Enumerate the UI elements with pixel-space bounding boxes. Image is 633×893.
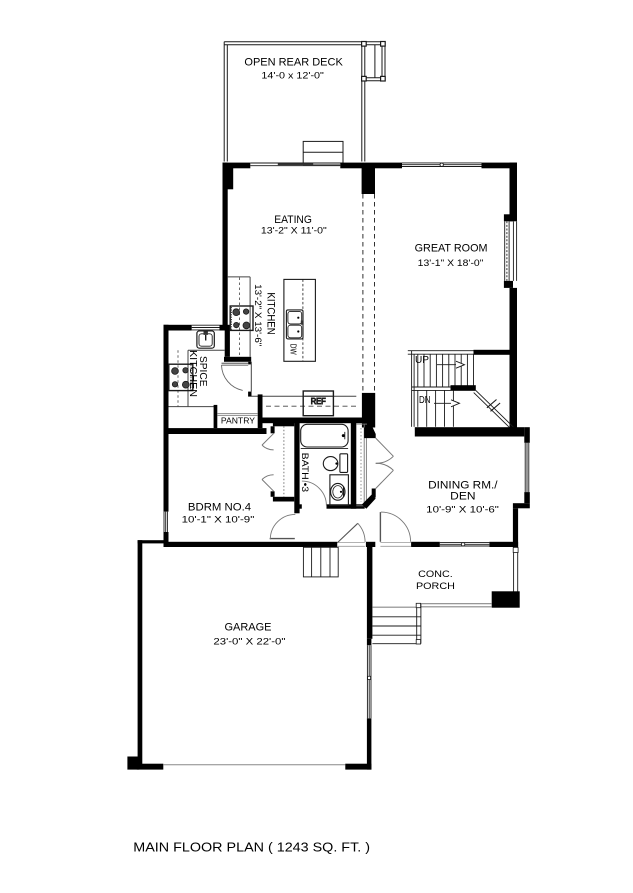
svg-text:DINING RM./: DINING RM./ xyxy=(428,479,499,491)
svg-text:DEN: DEN xyxy=(450,491,475,503)
svg-text:GREAT ROOM: GREAT ROOM xyxy=(415,243,488,255)
svg-text:13'-1" X 18'-0": 13'-1" X 18'-0" xyxy=(418,258,484,269)
svg-text:BATH •3: BATH •3 xyxy=(300,453,310,493)
svg-text:23'-0" X 22'-0": 23'-0" X 22'-0" xyxy=(213,636,285,647)
svg-text:10'-9" X 10'-6": 10'-9" X 10'-6" xyxy=(426,504,499,515)
svg-text:PORCH: PORCH xyxy=(416,581,455,592)
svg-text:13'-2" X 13'-6": 13'-2" X 13'-6" xyxy=(252,284,263,346)
svg-text:14'-0 x 12'-0": 14'-0 x 12'-0" xyxy=(261,71,324,82)
svg-text:UP: UP xyxy=(415,355,429,366)
svg-text:PANTRY: PANTRY xyxy=(221,416,256,425)
svg-text:EATING: EATING xyxy=(274,214,312,226)
svg-text:GARAGE: GARAGE xyxy=(225,622,272,634)
svg-text:MAIN FLOOR PLAN ( 1243 SQ. FT.: MAIN FLOOR PLAN ( 1243 SQ. FT. ) xyxy=(133,840,370,855)
svg-text:13'-2" X 11'-0": 13'-2" X 11'-0" xyxy=(261,226,327,237)
svg-text:CONC.: CONC. xyxy=(418,569,453,580)
svg-text:KITCHEN: KITCHEN xyxy=(264,292,276,334)
svg-text:10'-1" X 10'-9": 10'-1" X 10'-9" xyxy=(182,515,255,526)
svg-text:OPEN REAR DECK: OPEN REAR DECK xyxy=(244,56,343,68)
svg-text:REF: REF xyxy=(311,396,326,406)
svg-text:DN: DN xyxy=(419,395,431,406)
svg-text:DW: DW xyxy=(289,344,298,355)
svg-text:KITCHEN: KITCHEN xyxy=(187,350,198,397)
svg-text:BDRM NO.4: BDRM NO.4 xyxy=(188,501,251,513)
